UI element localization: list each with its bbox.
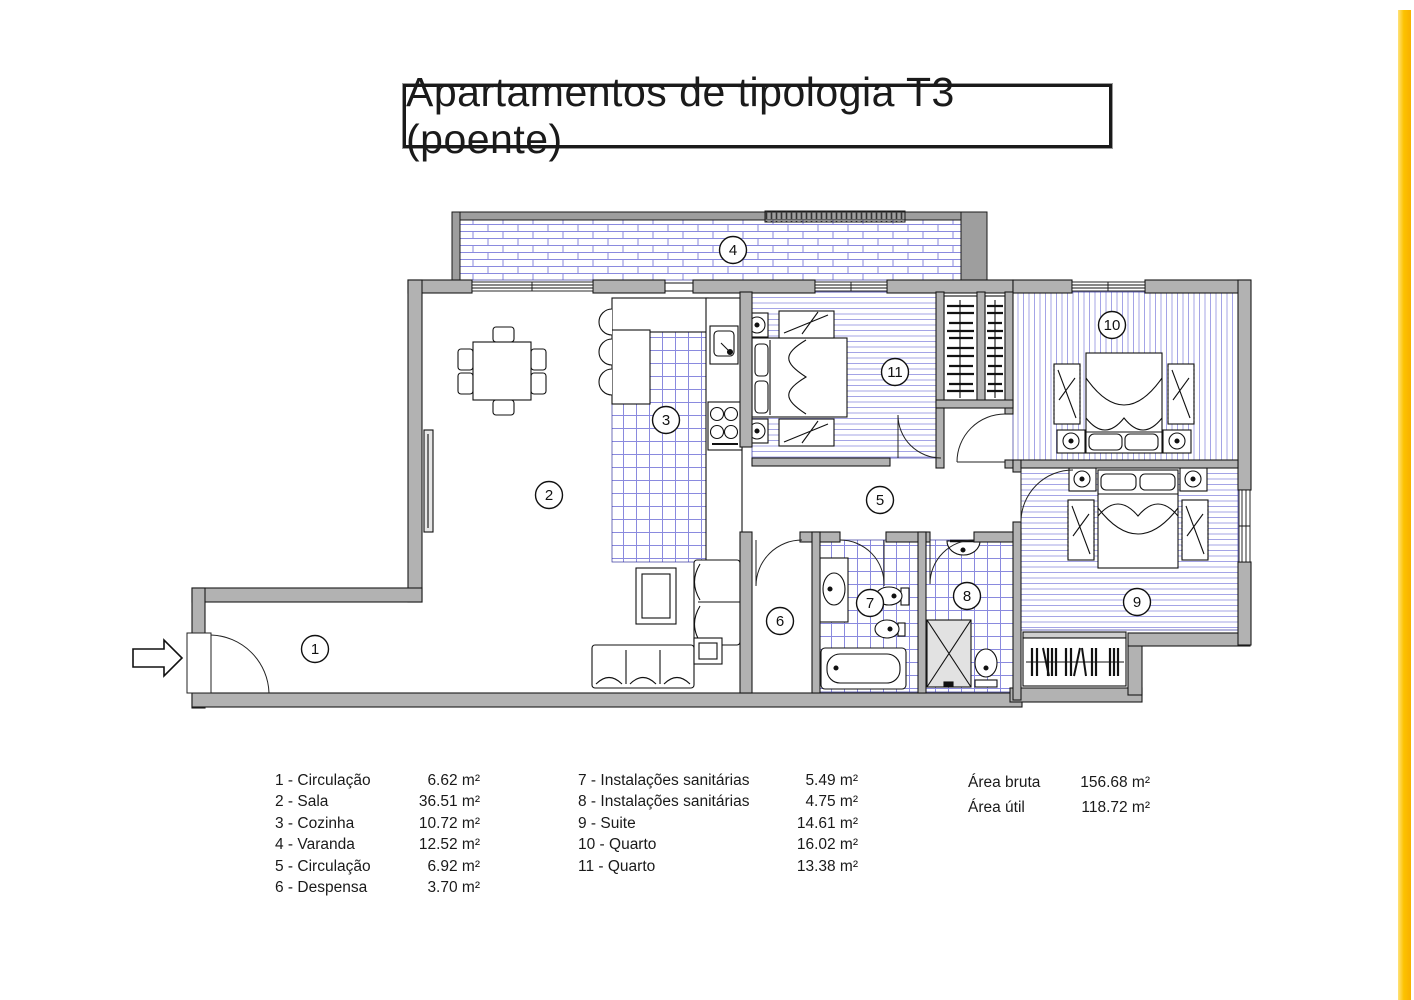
wardrobe-b (985, 296, 1005, 400)
legend-area: 10.72 m² (419, 813, 480, 834)
legend-label: 1 - Circulação (275, 770, 371, 791)
shower-icon-bath8 (927, 620, 971, 687)
room-badge-10: 10 (1099, 312, 1126, 339)
bed-suite9 (1098, 470, 1178, 568)
svg-text:1: 1 (311, 641, 319, 658)
room-badge-2: 2 (536, 482, 563, 509)
svg-text:4: 4 (729, 242, 737, 259)
legend-row: 9 - Suite14.61 m² (578, 813, 858, 834)
nightstand-room10-right (1163, 430, 1191, 453)
bed-room11 (752, 338, 847, 417)
entrance-door (187, 633, 269, 693)
toilet-icon-bath8 (975, 649, 997, 687)
varanda-floor (458, 220, 961, 280)
room-badge-5: 5 (867, 487, 894, 514)
legend-label: Área bruta (968, 770, 1040, 795)
room-badge-7: 7 (857, 590, 884, 617)
sofa-loveseat (694, 560, 740, 645)
legend-area: 6.62 m² (427, 770, 480, 791)
legend-row: 2 - Sala36.51 m² (275, 791, 480, 812)
bathtub-icon (821, 648, 906, 689)
accent-stripe (1398, 10, 1411, 1000)
legend-label: 8 - Instalações sanitárias (578, 791, 749, 812)
nightstand-suite9-right (1180, 468, 1207, 491)
room-badge-3: 3 (653, 407, 680, 434)
bidet-icon-bath7 (875, 620, 905, 638)
coffee-table (636, 568, 676, 624)
nightstand-room10-left (1057, 430, 1085, 453)
rug-room10-left (1054, 364, 1080, 424)
sofa-three-seat (592, 645, 694, 688)
room-badge-4: 4 (720, 237, 747, 264)
legend-row: 5 - Circulação6.92 m² (275, 856, 480, 877)
legend-area: 36.51 m² (419, 791, 480, 812)
legend-label: Área útil (968, 795, 1025, 820)
svg-text:7: 7 (866, 595, 874, 612)
room-badge-8: 8 (954, 583, 981, 610)
legend-row: 7 - Instalações sanitárias5.49 m² (578, 770, 858, 791)
varanda-opening-threshold (665, 283, 693, 291)
legend-label: 7 - Instalações sanitárias (578, 770, 749, 791)
side-table (694, 638, 722, 664)
window-room11 (815, 282, 887, 291)
svg-text:10: 10 (1104, 317, 1121, 334)
legend-row: 3 - Cozinha10.72 m² (275, 813, 480, 834)
legend-row: 6 - Despensa3.70 m² (275, 877, 480, 898)
legend-row: 11 - Quarto13.38 m² (578, 856, 858, 877)
legend-label: 3 - Cozinha (275, 813, 354, 834)
legend-total-row: Área bruta156.68 m² (968, 770, 1150, 795)
legend-area: 16.02 m² (797, 834, 858, 855)
room-badge-9: 9 (1124, 589, 1151, 616)
rug-suite9-left (1068, 500, 1094, 560)
rug-suite9-right (1182, 500, 1208, 560)
legend-area: 3.70 m² (427, 877, 480, 898)
entrance-arrow-icon (133, 640, 182, 676)
legend-area: 14.61 m² (797, 813, 858, 834)
kitchen-sink-icon (710, 326, 738, 364)
legend-row: 10 - Quarto16.02 m² (578, 834, 858, 855)
svg-text:2: 2 (545, 487, 553, 504)
legend-area: 4.75 m² (805, 791, 858, 812)
radiator (424, 430, 433, 532)
legend-label: 9 - Suite (578, 813, 636, 834)
legend-row: 8 - Instalações sanitárias4.75 m² (578, 791, 858, 812)
stove-icon (708, 402, 742, 450)
window-suite9 (1239, 490, 1250, 562)
rug-room11-bottom (779, 419, 834, 446)
legend-label: 5 - Circulação (275, 856, 371, 877)
svg-text:6: 6 (776, 613, 784, 630)
legend-area: 12.52 m² (419, 834, 480, 855)
window-room10 (1072, 282, 1145, 291)
legend-area: 6.92 m² (427, 856, 480, 877)
legend-row: 1 - Circulação6.62 m² (275, 770, 480, 791)
legend-area: 5.49 m² (805, 770, 858, 791)
rug-room11-top (779, 311, 834, 338)
room-badge-11: 11 (882, 359, 909, 386)
rug-room10-right (1168, 364, 1194, 424)
kitchen-shelf-arcs (599, 309, 612, 395)
wardrobe-a (944, 296, 977, 400)
legend-column-left: 1 - Circulação6.62 m² 2 - Sala36.51 m² 3… (275, 770, 480, 898)
varanda-railing (765, 211, 905, 222)
dining-table (458, 327, 546, 415)
room-badge-6: 6 (767, 608, 794, 635)
svg-text:5: 5 (876, 492, 884, 509)
page: Apartamentos de tipologia T3 (poente) (0, 0, 1414, 1000)
closet-suite9 (1023, 632, 1126, 686)
door-room10 (957, 414, 1005, 462)
legend-total-row: Área útil118.72 m² (968, 795, 1150, 820)
legend-label: 2 - Sala (275, 791, 328, 812)
legend-label: 10 - Quarto (578, 834, 656, 855)
svg-text:9: 9 (1133, 594, 1141, 611)
legend-row: 4 - Varanda12.52 m² (275, 834, 480, 855)
legend-column-right: 7 - Instalações sanitárias5.49 m² 8 - In… (578, 770, 858, 877)
bed-room10 (1086, 353, 1162, 453)
nightstand-suite9-left (1069, 468, 1096, 491)
legend-area: 13.38 m² (797, 856, 858, 877)
door-despensa6 (756, 540, 802, 586)
legend-label: 11 - Quarto (578, 856, 655, 877)
window-sala (472, 282, 593, 291)
svg-text:11: 11 (887, 364, 903, 381)
legend-area: 118.72 m² (1081, 795, 1150, 820)
legend-totals: Área bruta156.68 m² Área útil118.72 m² (968, 770, 1150, 820)
bath7-vanity (820, 558, 848, 622)
legend-label: 4 - Varanda (275, 834, 355, 855)
room-badge-1: 1 (302, 636, 329, 663)
legend-label: 6 - Despensa (275, 877, 367, 898)
svg-text:8: 8 (963, 588, 971, 605)
svg-text:3: 3 (662, 412, 670, 429)
legend-area: 156.68 m² (1080, 770, 1150, 795)
